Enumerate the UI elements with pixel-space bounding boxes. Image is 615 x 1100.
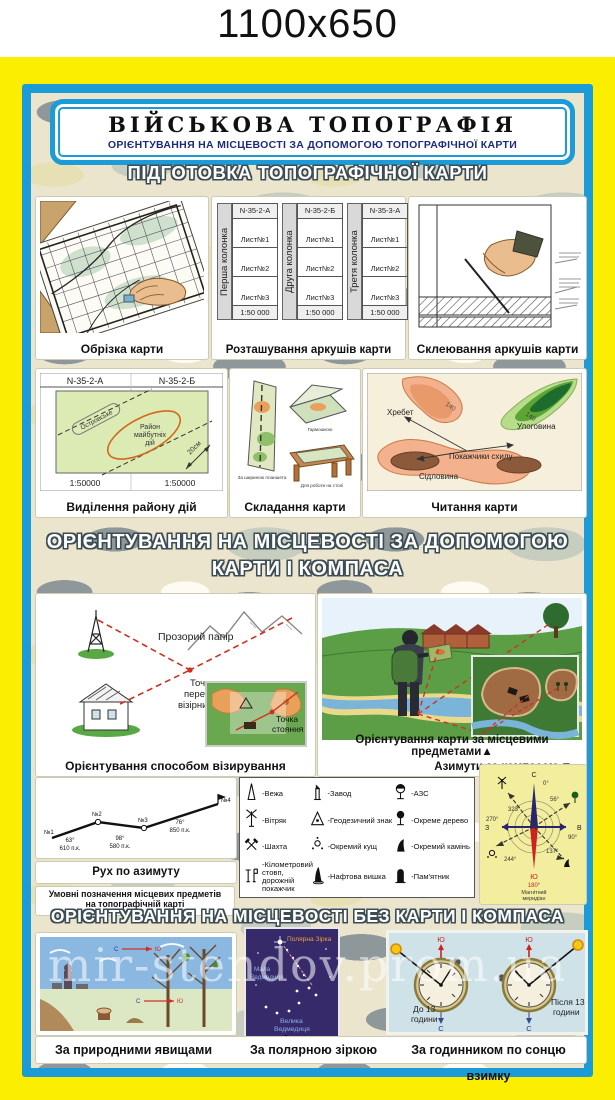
compass-bush-icon <box>487 850 497 858</box>
watch2-north-label: С <box>526 1024 532 1032</box>
caption-sun-watch: За годинником по сонцю взимку <box>396 1037 581 1089</box>
legend-item: -Вежа <box>244 782 310 807</box>
area-region-3: дій <box>145 439 155 447</box>
sheet-code: N-35-2-Б <box>298 204 342 219</box>
legend-title-line1: Умовні позначення місцевих предметів <box>36 889 234 899</box>
route-point-1: №1 <box>44 829 54 836</box>
folding-illustration: За шириною планшета Гармошкою Для роботи… <box>234 373 356 491</box>
panel-sun-watch: Ю С До 13 <box>389 933 585 1032</box>
sheet-scale: 1:50 000 <box>363 306 407 319</box>
section-header-compass-2: КАРТИ І КОМПАСА <box>0 558 615 581</box>
section-header-compass-1: ОРІЄНТУВАННЯ НА МІСЦЕВОСТІ ЗА ДОПОМОГОЮ <box>0 531 615 554</box>
panel-polar-star: Полярна Зірка Мала Ведмедиця Велика Ведм… <box>246 929 338 1045</box>
caption-map-reading: Читання карти <box>363 500 586 514</box>
rose-0: 0° <box>543 781 549 787</box>
monument-icon <box>393 865 408 890</box>
factory-icon <box>310 782 325 807</box>
caption-folding: Складання карти <box>230 500 360 514</box>
fold-label-3: Для роботи на столі <box>301 483 344 488</box>
fold-label-1: За шириною планшета <box>238 475 287 480</box>
panel-natural-signs: С Ю С Ю <box>35 932 237 1036</box>
reading-illustration: 140 140 Хребет Улоговина Покажчики схилу… <box>367 373 582 491</box>
title-banner: ВІЙСЬКОВА ТОПОГРАФІЯ ОРІЄНТУВАННЯ НА МІС… <box>50 99 575 165</box>
mine-icon <box>244 835 259 860</box>
caption-sighting: Орієнтування способом візирування <box>36 759 315 773</box>
rose-meridian-1: Магнітний <box>521 889 546 896</box>
sheet-cell: Лист№3 <box>233 277 277 306</box>
sheet-columns: Перша колонка N-35-2-А Лист№1 Лист№2 Лис… <box>217 203 408 320</box>
route-point-3: №3 <box>138 817 148 824</box>
watch1-label-2: години <box>411 1014 438 1024</box>
watch2-label-2: години <box>553 1007 580 1017</box>
route-point-2: №2 <box>92 811 102 818</box>
label-saddle: Сідловина <box>419 472 459 481</box>
panel-azimuth-route: №1 №2 №3 №4 63° 610 п.к. 98° 580 п.к. 76… <box>35 777 237 859</box>
poster-title: ВІЙСЬКОВА ТОПОГРАФІЯ <box>108 114 517 135</box>
sheet-cell: Лист№1 <box>298 219 342 248</box>
watch1-label-1: До 13 <box>413 1004 436 1014</box>
label-slope: Покажчики схилу <box>449 452 513 461</box>
rose-az3: 244° <box>504 857 517 863</box>
watch1-north-label: С <box>438 1024 444 1032</box>
geodesic-sign-icon <box>310 808 325 833</box>
sighting-illustration: Прозорий папір Точка перетину візірних л… <box>40 598 311 750</box>
glue-illustration <box>413 201 582 333</box>
column-side-label: Перша колонка <box>217 203 232 320</box>
route-point-4: №4 <box>221 797 231 804</box>
rose-east-letter: В <box>577 825 582 832</box>
gas-station-icon <box>393 782 408 807</box>
section-header-nocompass: ОРІЄНТУВАННЯ НА МІСЦЕВОСТІ БЕЗ КАРТИ І К… <box>0 906 615 927</box>
panel-folding: За шириною планшета Гармошкою Для роботи… <box>229 368 361 518</box>
legend-item: -Завод <box>310 782 394 807</box>
caption-glue-sheets: Склеювання аркушів карти <box>409 342 586 356</box>
sheet-column-1: Перша колонка N-35-2-А Лист№1 Лист№2 Лис… <box>217 203 278 320</box>
area-scale-right: 1:50000 <box>165 478 196 488</box>
legend-item: -Окреме дерево <box>393 808 470 833</box>
ursa-major-label-2: Ведмедиця <box>274 1026 310 1033</box>
sheet-scale: 1:50 000 <box>233 306 277 319</box>
polaris-label: Полярна Зірка <box>287 935 332 943</box>
bush-icon <box>310 835 325 860</box>
label-standing-1: Точка <box>276 714 298 724</box>
legend-item: -Окремий кущ <box>310 835 394 860</box>
legend-item: -Вітряк <box>244 808 310 833</box>
sheet-column-2: Друга колонка N-35-2-Б Лист№1 Лист№2 Лис… <box>282 203 343 320</box>
caption-sheet-layout: Розташування аркушів карти <box>212 344 405 356</box>
panel-area-selection: N-35-2-А N-35-2-Б Островське Район майбу… <box>35 368 228 518</box>
rose-south-letter: Ю <box>530 872 538 881</box>
legend-item: -АЗС <box>393 782 470 807</box>
ursa-minor-label-1: Мала <box>254 966 271 973</box>
rose-west-letter: З <box>485 825 489 832</box>
oil-derrick-icon <box>310 865 325 890</box>
section-header-prep: ПІДГОТОВКА ТОПОГРАФІЧНОЇ КАРТИ <box>0 162 615 184</box>
legend-item: -Шахта <box>244 835 310 860</box>
route-dist-3: 850 п.к. <box>170 828 191 834</box>
area-code-left: N-35-2-А <box>67 376 104 386</box>
rose-az2: 137° <box>546 849 559 855</box>
label-hollow: Улоговина <box>517 422 556 431</box>
orient-inset-map <box>472 656 578 736</box>
sheet-cell: Лист№2 <box>363 248 407 277</box>
km-post-icon <box>244 865 259 890</box>
rose-270: 270° <box>486 817 499 823</box>
stump-figure <box>97 1008 111 1020</box>
houses-figure <box>420 624 492 648</box>
sheet-column-3: Третя колонка N-35-3-А Лист№1 Лист№2 Лис… <box>347 203 408 320</box>
compass-rose: С 0° В 90° Ю 180° З 270° 56° 137° 244° 3… <box>484 769 584 902</box>
panel-cut-map: Обрізка карти <box>35 196 209 360</box>
rose-az1: 56° <box>550 797 560 803</box>
rose-90: 90° <box>568 835 578 841</box>
poster-subtitle: ОРІЄНТУВАННЯ НА МІСЦЕВОСТІ ЗА ДОПОМОГОЮ … <box>108 139 517 151</box>
caption-cut-map: Обрізка карти <box>36 342 208 356</box>
sheet-code: N-35-2-А <box>233 204 277 219</box>
route-dist-2: 580 п.к. <box>110 844 131 850</box>
ursa-minor-label-2: Ведмедиця <box>250 974 284 981</box>
windmill-icon <box>244 808 259 833</box>
sheet-cell: Лист№3 <box>363 277 407 306</box>
route-dist-1: 610 п.к. <box>60 846 81 852</box>
route-angle-2: 98° <box>115 836 125 842</box>
compass-stone-icon <box>564 859 570 867</box>
caption-polar-star: За полярною зіркою <box>231 1037 396 1063</box>
sheet-scale: 1:50 000 <box>298 306 342 319</box>
sheet-cell: Лист№1 <box>233 219 277 248</box>
panel-glue-sheets: Склеювання аркушів карти <box>408 196 587 360</box>
stars-illustration: Полярна Зірка Мала Ведмедиця Велика Ведм… <box>246 929 338 1045</box>
sheet-cell: Лист№3 <box>298 277 342 306</box>
fold-label-2: Гармошкою <box>308 427 333 432</box>
watches-illustration: Ю С До 13 <box>389 933 585 1032</box>
route-angle-1: 63° <box>65 838 75 844</box>
orient-illustration <box>322 598 582 740</box>
stone-icon <box>393 835 408 860</box>
panel-compass-rose: С 0° В 90° Ю 180° З 270° 56° 137° 244° 3… <box>479 764 587 905</box>
poster-photo: 1100x650 ВІЙСЬКОВА ТОПОГРАФІЯ ОРІЄНТУВАН… <box>0 0 615 1100</box>
compass-tree-icon <box>572 792 579 803</box>
tower-icon <box>244 782 259 807</box>
area-scale-left: 1:50000 <box>70 478 101 488</box>
watch-before-13: Ю С До 13 <box>391 935 467 1032</box>
cut-map-illustration <box>40 201 204 333</box>
watch-after-13: Ю С Після 13 <box>498 935 584 1032</box>
area-region-1: Район <box>140 423 160 431</box>
column-side-label: Друга колонка <box>282 203 297 320</box>
nature-south-label-2: Ю <box>177 999 183 1005</box>
panel-sighting: Прозорий папір Точка перетину візірних л… <box>35 593 316 777</box>
compass-windmill-icon <box>498 777 506 789</box>
legend-item: -Нафтова вишка <box>310 861 394 893</box>
watch2-label-1: Після 13 <box>551 997 585 1007</box>
panel-map-reading: 140 140 Хребет Улоговина Покажчики схилу… <box>362 368 587 518</box>
legend-item: -Окремий камінь <box>393 835 470 860</box>
panel-orient-objects: Орієнтування карти за місцевими предмета… <box>317 593 587 777</box>
nature-south-label: Ю <box>155 947 161 953</box>
lone-tree-icon <box>393 808 408 833</box>
caption-natural-signs: За природними явищами <box>41 1037 226 1063</box>
legend-item: -Пам'ятник <box>393 861 470 893</box>
caption-orient-objects: Орієнтування карти за місцевими предмета… <box>318 734 586 758</box>
ursa-major-label-1: Велика <box>280 1018 303 1025</box>
sheet-cell: Лист№2 <box>233 248 277 277</box>
legend-item: -Геодезичний знак <box>310 808 394 833</box>
route-profile: №1 №2 №3 №4 63° 610 п.к. 98° 580 п.к. 76… <box>40 782 232 854</box>
panel-sheet-layout: Перша колонка N-35-2-А Лист№1 Лист№2 Лис… <box>211 196 406 360</box>
bottom-captions-strip: За природними явищами За полярною зіркою… <box>35 1036 587 1064</box>
rose-180: 180° <box>528 883 541 889</box>
label-standing-2: стояння <box>272 724 304 734</box>
caption-area-selection: Виділення району дій <box>36 500 227 514</box>
sun-left <box>391 944 401 954</box>
nature-illustration: С Ю С Ю <box>40 937 232 1031</box>
area-region-2: майбутніх <box>134 431 167 439</box>
sheet-cell: Лист№2 <box>298 248 342 277</box>
nature-north-label-2: С <box>136 999 141 1005</box>
route-angle-3: 76° <box>175 820 185 826</box>
label-transparent-paper: Прозорий папір <box>158 631 234 643</box>
sheet-cell: Лист№1 <box>363 219 407 248</box>
rose-north-letter: С <box>531 772 536 779</box>
watch1-south-label: Ю <box>437 935 445 944</box>
sun-right <box>573 940 583 950</box>
rose-az4: 323° <box>508 807 521 813</box>
caption-azimuth-route: Рух по азимуту <box>35 861 237 884</box>
column-side-label: Третя колонка <box>347 203 362 320</box>
nature-north-label: С <box>114 947 119 953</box>
rose-meridian-2: меридіан <box>522 896 545 902</box>
standing-point-inset: Точка стояння <box>206 682 306 746</box>
label-ridge: Хребет <box>387 408 414 417</box>
legend-item: -Кілометровий стовп, дорожній покажчик <box>244 861 310 893</box>
map-symbols-legend: -Вежа -Завод -АЗС -Вітряк -Геодезичний з… <box>239 777 475 898</box>
sheet-code: N-35-3-А <box>363 204 407 219</box>
watch2-south-label: Ю <box>525 935 533 944</box>
area-code-right: N-35-2-Б <box>159 376 196 386</box>
area-map: N-35-2-А N-35-2-Б Островське Район майбу… <box>40 373 223 491</box>
